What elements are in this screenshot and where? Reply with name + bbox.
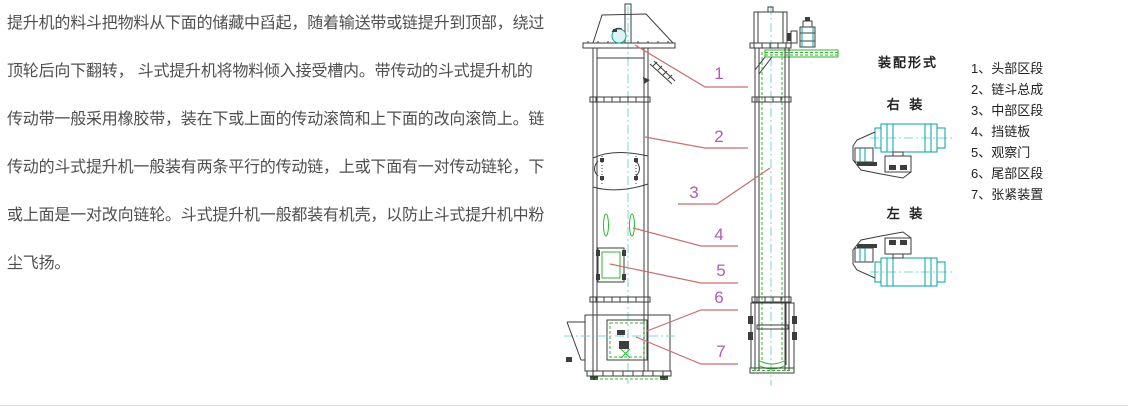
legend-item: 4、挡链板 [971,121,1043,142]
description-line: 顶轮后向下翻转， 斗式提升机将物料倾入接受槽内。带传动的斗式提升机的 [7,48,563,96]
drive-motor [787,17,815,47]
callout-2: 2 [711,128,727,146]
legend-item: 7、张紧装置 [971,184,1043,205]
inlet-hopper [567,322,585,360]
legend-item: 5、观察门 [971,142,1043,163]
legend-item: 2、链斗总成 [971,79,1043,100]
callout-leader-lines [610,45,770,364]
description-line: 或上面是一对改向链轮。斗式提升机一般都装有机壳，以防止斗式提升机中粉 [7,192,563,240]
description-line: 传动的斗式提升机一般装有两条平行的传动链，上或下面有一对传动链轮，下 [7,144,563,192]
callout-4: 4 [711,226,727,244]
description-line: 传动带一般采用橡胶带，装在下或上面的传动滚筒和上下面的改向滚筒上。链 [7,96,563,144]
chain-bucket-assembly [593,153,648,190]
parts-legend: 1、头部区段 2、链斗总成 3、中部区段 4、挡链板 5、观察门 6、尾部区段 … [971,58,1043,205]
service-platform [755,50,838,74]
callout-6: 6 [711,289,727,307]
legend-item: 3、中部区段 [971,100,1043,121]
elevator-technical-drawing [560,0,850,406]
chain-guard-plates [604,214,635,236]
assembly-left-drawing [848,220,960,298]
assembly-right-drawing [848,112,960,190]
description-line: 尘飞扬。 [7,240,563,288]
elevator-side-view [748,6,838,386]
legend-item: 1、头部区段 [971,58,1043,79]
legend-item: 6、尾部区段 [971,163,1043,184]
description-line: 提升机的料斗把物料从下面的储藏中舀起，随着输送带或链提升到顶部，绕过 [7,0,563,48]
bucket-elevator-article: 提升机的料斗把物料从下面的储藏中舀起，随着输送带或链提升到顶部，绕过 顶轮后向下… [0,0,1128,406]
assembly-form-title: 装配形式 [868,52,948,71]
callout-1: 1 [711,65,727,83]
observation-door [596,248,626,282]
callout-5: 5 [713,262,729,280]
callout-3: 3 [686,184,702,202]
callout-7: 7 [713,343,729,361]
description-paragraph: 提升机的料斗把物料从下面的储藏中舀起，随着输送带或链提升到顶部，绕过 顶轮后向下… [7,0,563,288]
assembly-right-label: 右 装 [866,94,946,113]
